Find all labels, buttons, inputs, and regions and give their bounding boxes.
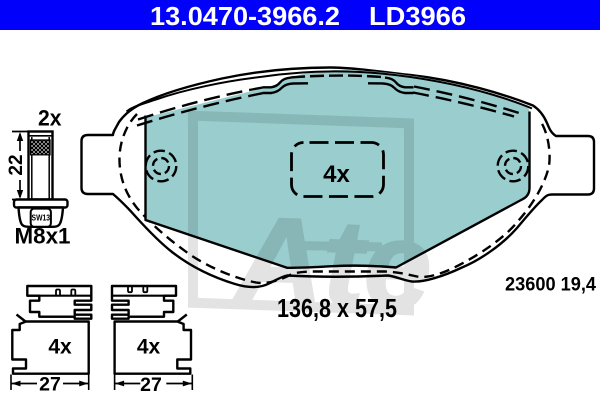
svg-text:LD3966: LD3966 <box>369 1 466 31</box>
svg-text:4x: 4x <box>48 336 72 359</box>
svg-text:136,8 x 57,5: 136,8 x 57,5 <box>277 295 397 323</box>
svg-text:13.0470-3966.2: 13.0470-3966.2 <box>150 1 340 31</box>
svg-text:SW13: SW13 <box>32 213 51 223</box>
svg-text:4x: 4x <box>323 161 350 188</box>
svg-text:27: 27 <box>39 374 61 396</box>
svg-text:23600 19,4: 23600 19,4 <box>505 274 596 296</box>
svg-text:M8x1: M8x1 <box>15 224 71 249</box>
svg-text:4x: 4x <box>137 336 161 359</box>
svg-text:27: 27 <box>140 374 162 396</box>
svg-text:2x: 2x <box>38 105 62 130</box>
svg-text:22: 22 <box>6 154 27 175</box>
